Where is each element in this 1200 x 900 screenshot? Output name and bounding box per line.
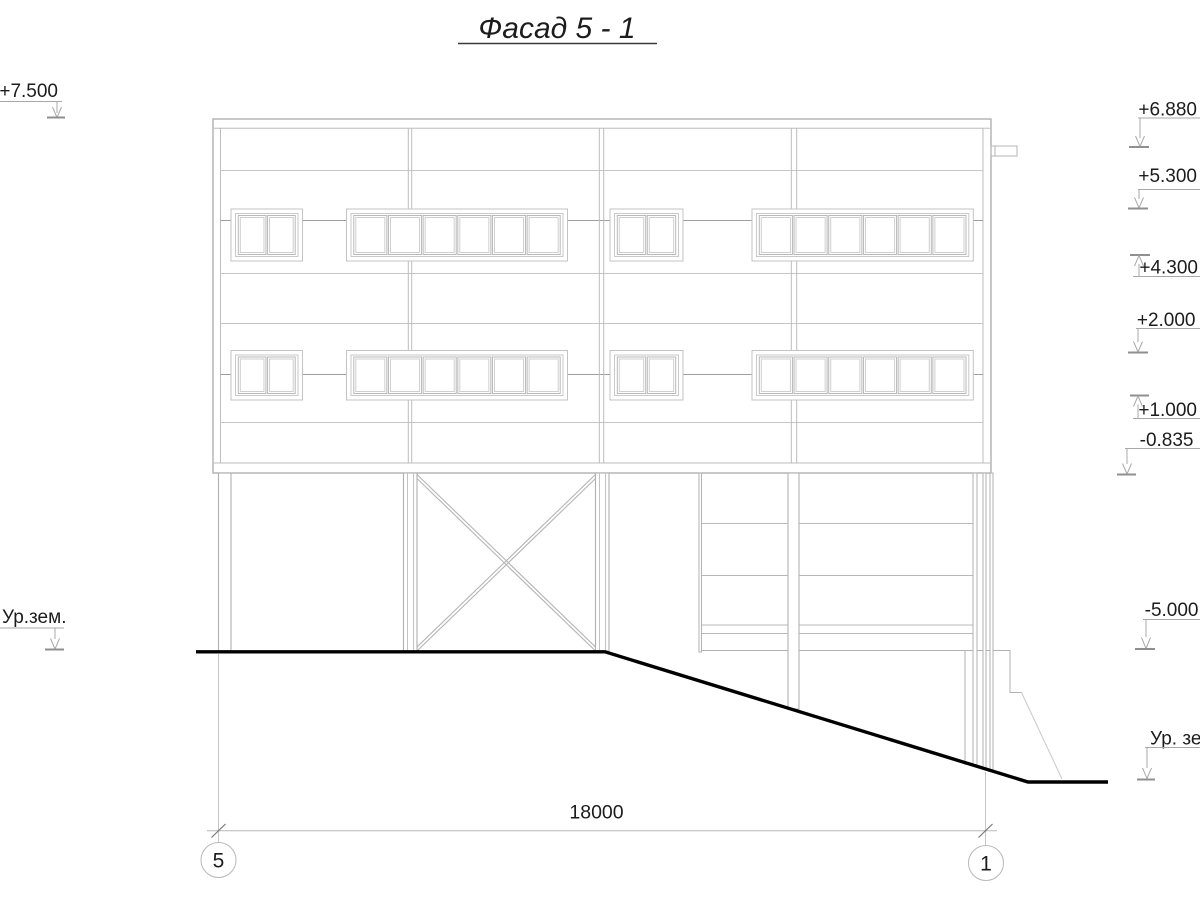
window-pane <box>829 216 862 255</box>
window-pane <box>238 357 266 394</box>
window-pane <box>898 216 931 255</box>
window-inner-frame <box>615 355 679 396</box>
facade-panel-lines <box>221 171 984 423</box>
window-inner-frame <box>757 214 969 257</box>
window-pane <box>794 216 827 255</box>
ground-line <box>196 652 1108 782</box>
window-inner-frame <box>351 355 563 396</box>
window-pane <box>238 216 266 255</box>
window-pane-inner <box>356 359 385 392</box>
window-pane <box>863 216 896 255</box>
window-pane-inner <box>935 218 964 253</box>
column-a <box>219 473 232 652</box>
window-pane <box>527 357 560 394</box>
elevation-mark-7500: +7.500 <box>0 81 65 118</box>
elevation-label: -0.835 <box>1140 430 1194 451</box>
elevation-mark-minus0835: -0.835 <box>1117 430 1200 475</box>
axis-number: 1 <box>980 853 992 876</box>
elevation-mark-ground-right: Ур. зе <box>1137 729 1200 780</box>
window-group-frame <box>752 351 973 401</box>
window-pane-inner <box>831 218 860 253</box>
window-group-frame <box>231 351 303 401</box>
elevation-arrow-down-icon <box>1143 748 1200 779</box>
window-inner-frame <box>236 355 299 396</box>
elevation-arrow-down-icon <box>1123 449 1200 475</box>
window-pane <box>863 357 896 394</box>
axis-number: 5 <box>213 850 225 873</box>
window-group-frame <box>231 209 303 261</box>
elevation-marks-left: +7.500 Ур.зем. <box>0 81 66 650</box>
facade-pilaster-strips <box>408 128 796 463</box>
window-pane-inner <box>460 359 489 392</box>
window-pane-inner <box>240 218 264 253</box>
elevation-mark-6880: +6.880 <box>1129 100 1200 148</box>
window-pane <box>354 357 387 394</box>
window-pane <box>354 216 387 255</box>
window-pane-inner <box>761 218 790 253</box>
window-pane-inner <box>270 218 294 253</box>
window-pane-inner <box>529 218 558 253</box>
window-pane <box>759 357 792 394</box>
elevation-label: +7.500 <box>0 81 58 102</box>
roof-drain-stub <box>991 146 1017 156</box>
facade-drawing: Фасад 5 - 1 <box>0 0 1200 900</box>
window-pane-inner <box>494 359 523 392</box>
window-inner-frame <box>615 214 679 257</box>
window-pane-inner <box>900 359 929 392</box>
window-pane-inner <box>831 359 860 392</box>
window-pane <box>759 216 792 255</box>
window-pane-inner <box>390 218 419 253</box>
window-pane-inner <box>761 359 790 392</box>
elevation-mark-minus5000: -5.000 <box>1135 600 1200 649</box>
elevation-arrow-down-icon <box>1134 329 1200 353</box>
elevation-arrow-down-icon <box>0 628 64 649</box>
window-pane-inner <box>460 218 489 253</box>
window-pane <box>647 357 675 394</box>
window-pane-inner <box>619 359 643 392</box>
window-pane <box>268 357 296 394</box>
elevation-label: +6.880 <box>1138 100 1197 121</box>
axis-bubble-5: 5 <box>201 843 236 878</box>
window-pane-inner <box>796 359 825 392</box>
window-pane-inner <box>865 359 894 392</box>
window-group-frame <box>752 209 973 261</box>
elevation-mark-ground-left: Ур.зем. <box>0 607 66 650</box>
embankment-cut-line <box>1022 693 1063 780</box>
window-pane <box>617 216 645 255</box>
window-pane-inner <box>529 359 558 392</box>
page-title: Фасад 5 - 1 <box>478 12 635 45</box>
window-pane <box>492 216 525 255</box>
substructure <box>219 473 1063 779</box>
window-pane <box>933 216 966 255</box>
elevation-marks-right: +6.880 +5.300 +4.300 +2.000 +1.000 -0.83… <box>1117 100 1200 780</box>
window-inner-frame <box>351 214 563 257</box>
window-pane <box>458 357 491 394</box>
window-inner-frame <box>757 355 969 396</box>
facade-sill-lines <box>221 221 984 375</box>
window-pane-inner <box>390 359 419 392</box>
window-pane <box>268 216 296 255</box>
window-pane-inner <box>356 218 385 253</box>
window-pane <box>388 357 421 394</box>
windows-layer <box>231 209 973 400</box>
window-pane <box>647 216 675 255</box>
dimension-value: 18000 <box>569 802 623 824</box>
window-pane-inner <box>425 359 454 392</box>
window-pane <box>423 357 456 394</box>
elevation-mark-4300: +4.300 <box>1130 255 1200 279</box>
stair-landing-lines <box>701 524 973 634</box>
window-pane-inner <box>494 218 523 253</box>
window-pane-inner <box>649 218 673 253</box>
window-pane-inner <box>649 359 673 392</box>
window-group-frame <box>347 351 568 401</box>
elevation-label: +2.000 <box>1137 310 1196 331</box>
dimension-group: 18000 5 1 <box>201 654 1004 881</box>
window-group-frame <box>347 209 568 261</box>
window-group-frame <box>610 209 683 261</box>
window-pane <box>458 216 491 255</box>
elevation-arrow-down-icon <box>1142 620 1200 649</box>
elevation-arrow-down-icon <box>1136 118 1200 147</box>
window-pane <box>794 357 827 394</box>
window-pane-inner <box>865 218 894 253</box>
window-group-frame <box>610 351 683 401</box>
building-outline <box>213 119 991 473</box>
elevation-label: Ур. зе <box>1150 729 1200 750</box>
window-pane <box>388 216 421 255</box>
elevation-mark-5300: +5.300 <box>1128 166 1200 209</box>
window-pane-inner <box>270 359 294 392</box>
window-pane <box>492 357 525 394</box>
window-pane <box>423 216 456 255</box>
column-c <box>596 473 610 651</box>
column-f <box>973 473 993 771</box>
elevation-label: +5.300 <box>1138 166 1197 187</box>
elevation-mark-2000: +2.000 <box>1128 310 1200 353</box>
window-pane <box>898 357 931 394</box>
elevation-label: -5.000 <box>1145 600 1199 621</box>
elevation-mark-1000: +1.000 <box>1130 396 1200 422</box>
window-inner-frame <box>236 214 299 257</box>
facade-elevation-sheet: Фасад 5 - 1 <box>0 0 1200 900</box>
window-pane <box>829 357 862 394</box>
elevation-arrow-down-icon <box>0 102 62 118</box>
window-pane <box>933 357 966 394</box>
window-pane <box>527 216 560 255</box>
cross-bracing <box>417 475 596 652</box>
drawing-title: Фасад 5 - 1 <box>458 12 657 45</box>
window-pane-inner <box>619 218 643 253</box>
elevation-label: Ур.зем. <box>2 607 66 628</box>
elevation-label: +4.300 <box>1139 258 1198 279</box>
window-pane-inner <box>240 359 264 392</box>
window-pane-inner <box>796 218 825 253</box>
elevation-label: +1.000 <box>1138 400 1197 421</box>
axis-bubble-1: 1 <box>969 846 1004 881</box>
elevation-arrow-down-icon <box>1135 190 1200 209</box>
building-inner-edges <box>213 128 991 463</box>
column-d <box>699 473 702 652</box>
window-pane-inner <box>425 218 454 253</box>
column-e <box>788 473 799 709</box>
window-pane-inner <box>900 218 929 253</box>
building <box>213 119 1017 473</box>
window-pane <box>617 357 645 394</box>
window-pane-inner <box>935 359 964 392</box>
column-b <box>404 473 418 652</box>
